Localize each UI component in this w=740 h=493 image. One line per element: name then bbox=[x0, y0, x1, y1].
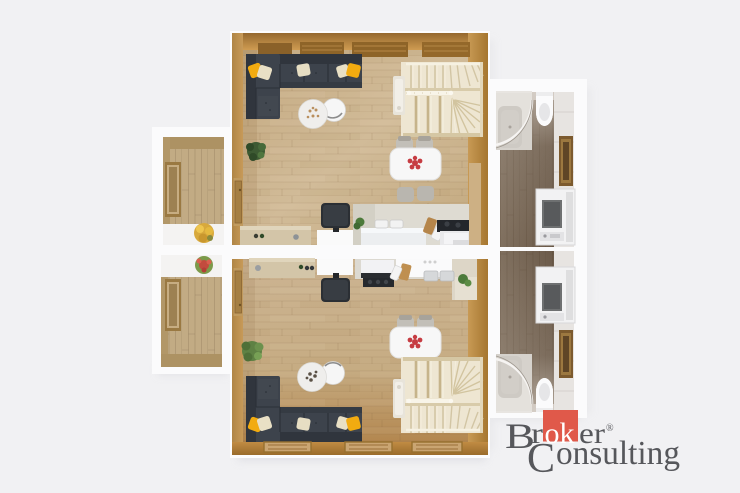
svg-text:onsulting: onsulting bbox=[556, 435, 680, 472]
svg-text:C: C bbox=[527, 436, 555, 482]
svg-text:®: ® bbox=[606, 423, 614, 434]
